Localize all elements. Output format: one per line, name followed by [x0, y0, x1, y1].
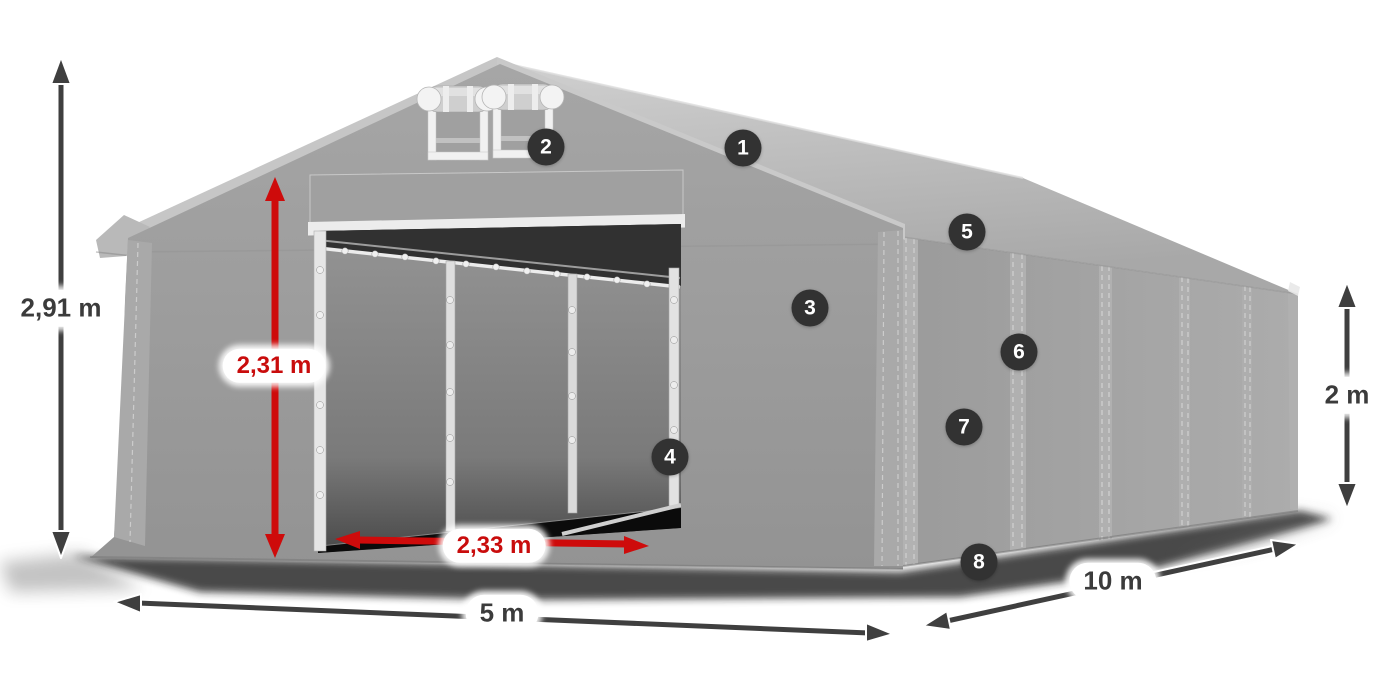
hotspot-5[interactable]: 5: [949, 214, 986, 251]
hotspot-4[interactable]: 4: [652, 439, 689, 476]
tent-dimensions-diagram: 2,91 m 2,31 m 2,33 m 5 m 10 m 2 m 1 2 3 …: [0, 0, 1400, 700]
interior-side-wall: [316, 247, 681, 547]
hotspot-3[interactable]: 3: [792, 290, 829, 327]
hotspot-6[interactable]: 6: [1001, 334, 1038, 371]
hotspot-8[interactable]: 8: [961, 544, 998, 581]
front-right-corner-strip: [874, 230, 903, 566]
door-interior: [316, 218, 684, 553]
label-total-height: 2,91 m: [7, 290, 116, 327]
side-wall: [903, 237, 1298, 566]
label-door-height: 2,31 m: [223, 349, 326, 383]
entrance: [308, 170, 685, 553]
hotspot-2[interactable]: 2: [528, 129, 565, 166]
label-side-length: 10 m: [1069, 563, 1156, 600]
label-door-width: 2,33 m: [443, 529, 546, 563]
label-wall-height: 2 m: [1311, 377, 1384, 414]
tent-illustration: [0, 0, 1400, 700]
hotspot-1[interactable]: 1: [725, 130, 762, 167]
door-frame-left-pole: [314, 231, 326, 551]
hotspot-7[interactable]: 7: [946, 409, 983, 446]
label-front-width: 5 m: [466, 595, 539, 632]
